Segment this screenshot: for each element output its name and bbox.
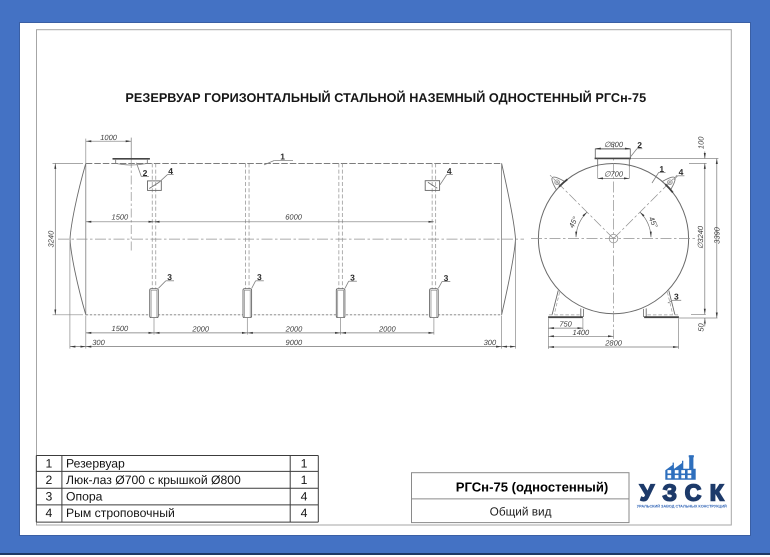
svg-text:Опора: Опора	[66, 490, 103, 504]
svg-text:100: 100	[696, 136, 705, 149]
svg-text:1: 1	[46, 457, 53, 471]
svg-text:4: 4	[679, 167, 684, 177]
svg-text:РЕЗЕРВУАР ГОРИЗОНТАЛЬНЫЙ СТАЛЬ: РЕЗЕРВУАР ГОРИЗОНТАЛЬНЫЙ СТАЛЬНОЙ НАЗЕМН…	[125, 90, 646, 105]
svg-text:1400: 1400	[573, 328, 591, 337]
svg-text:300: 300	[92, 338, 105, 347]
svg-text:4: 4	[301, 489, 308, 503]
svg-text:Общий вид: Общий вид	[490, 505, 552, 519]
svg-text:6000: 6000	[285, 213, 303, 222]
svg-text:1: 1	[659, 164, 664, 174]
svg-text:3240: 3240	[47, 230, 56, 248]
svg-text:1500: 1500	[112, 324, 130, 333]
svg-text:3: 3	[46, 490, 53, 504]
svg-text:300: 300	[484, 338, 497, 347]
svg-text:∅3240: ∅3240	[696, 225, 705, 249]
svg-text:50: 50	[696, 323, 705, 332]
svg-text:2: 2	[143, 168, 148, 178]
svg-text:Резервуар: Резервуар	[66, 457, 125, 471]
svg-text:1: 1	[280, 152, 285, 162]
svg-text:Люк-лаз Ø700 с крышкой Ø800: Люк-лаз Ø700 с крышкой Ø800	[66, 473, 241, 487]
svg-text:3: 3	[167, 272, 172, 282]
svg-text:750: 750	[559, 320, 572, 329]
svg-text:Рым строповочный: Рым строповочный	[66, 506, 175, 520]
svg-text:4: 4	[447, 166, 452, 176]
svg-text:РГСн-75 (одностенный): РГСн-75 (одностенный)	[456, 480, 609, 495]
svg-text:∅700: ∅700	[604, 170, 624, 179]
svg-text:2800: 2800	[604, 339, 623, 348]
svg-text:1000: 1000	[100, 133, 118, 142]
svg-text:1: 1	[301, 456, 308, 470]
svg-text:УЗСК: УЗСК	[640, 480, 732, 506]
svg-text:2000: 2000	[285, 324, 304, 333]
svg-text:2000: 2000	[191, 324, 210, 333]
svg-text:1500: 1500	[112, 212, 130, 221]
svg-text:3: 3	[444, 273, 449, 283]
svg-text:2000: 2000	[378, 324, 397, 333]
svg-text:45°: 45°	[647, 215, 660, 229]
svg-text:1: 1	[301, 473, 308, 487]
svg-text:3: 3	[350, 273, 355, 283]
svg-text:4: 4	[301, 506, 308, 520]
svg-text:2: 2	[637, 140, 642, 150]
svg-text:4: 4	[46, 506, 53, 520]
svg-text:2: 2	[46, 473, 53, 487]
svg-text:3: 3	[674, 292, 679, 302]
svg-text:∅800: ∅800	[604, 140, 624, 149]
svg-text:УРАЛЬСКИЙ ЗАВОД СТАЛЬНЫХ КОНСТ: УРАЛЬСКИЙ ЗАВОД СТАЛЬНЫХ КОНСТРУКЦИЙ	[637, 503, 727, 508]
svg-text:9000: 9000	[286, 338, 304, 347]
svg-text:3390: 3390	[713, 226, 722, 244]
svg-text:4: 4	[168, 166, 173, 176]
svg-text:3: 3	[257, 272, 262, 282]
